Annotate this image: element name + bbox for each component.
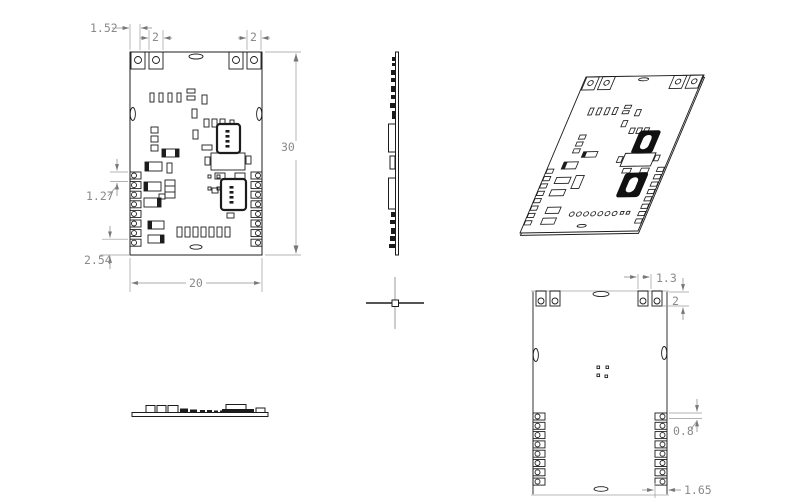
dim-label-30: 30 — [281, 140, 295, 154]
bottom-edge-view — [132, 405, 268, 417]
side-view — [389, 52, 399, 255]
dim-label-1-52: 1.52 — [90, 21, 118, 35]
dim-label-1-65: 1.65 — [684, 483, 712, 497]
side-board-outline — [396, 52, 399, 255]
dim-label-0-8: 0.8 — [673, 424, 694, 438]
iso-board-outline — [520, 75, 704, 233]
cad-canvas: 1.52 2 2 30 20 1.27 — [0, 0, 800, 500]
isometric-view — [519, 75, 705, 235]
front-usb-connector-1 — [217, 124, 240, 153]
dim-label-2-54: 2.54 — [84, 253, 112, 267]
dim-label-1-27: 1.27 — [86, 189, 114, 203]
dim-label-20: 20 — [189, 276, 203, 290]
back-view: 1.3 2 0.8 1.65 — [531, 271, 712, 498]
bottom-board-outline — [132, 413, 268, 417]
center-mark — [366, 277, 424, 329]
bottom-components — [146, 405, 265, 413]
dim-label-2-left: 2 — [152, 30, 159, 44]
dim-label-2-back: 2 — [672, 294, 679, 308]
pcb-drawing: 1.52 2 2 30 20 1.27 — [0, 0, 800, 500]
dim-label-2-right: 2 — [250, 30, 257, 44]
side-components — [389, 57, 396, 248]
dim-label-1-3: 1.3 — [656, 271, 677, 285]
front-view: 1.52 2 2 30 20 1.27 — [84, 21, 301, 292]
